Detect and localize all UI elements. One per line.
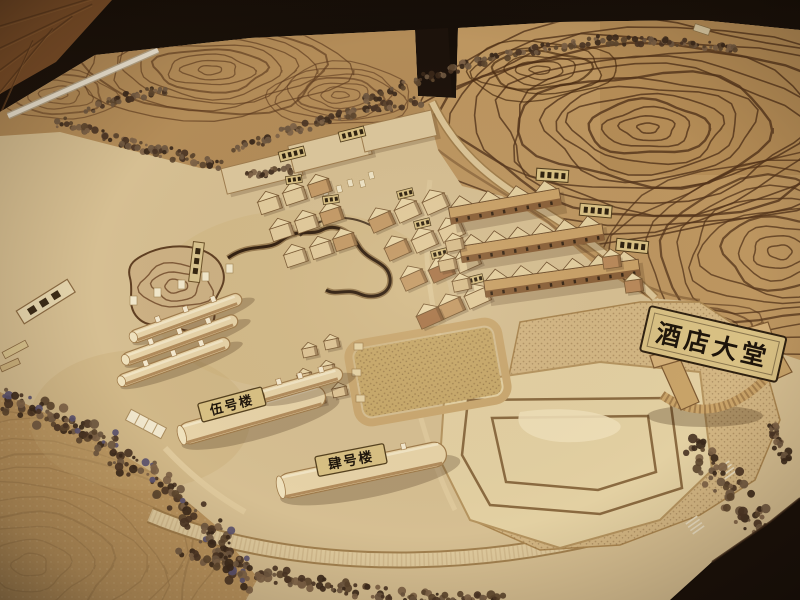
photo-architectural-model: 伍号楼 肆号楼 酒店大堂 — [0, 0, 800, 600]
model-scene: 伍号楼 肆号楼 酒店大堂 — [0, 0, 800, 600]
photo-lighting-vignette — [0, 0, 800, 600]
